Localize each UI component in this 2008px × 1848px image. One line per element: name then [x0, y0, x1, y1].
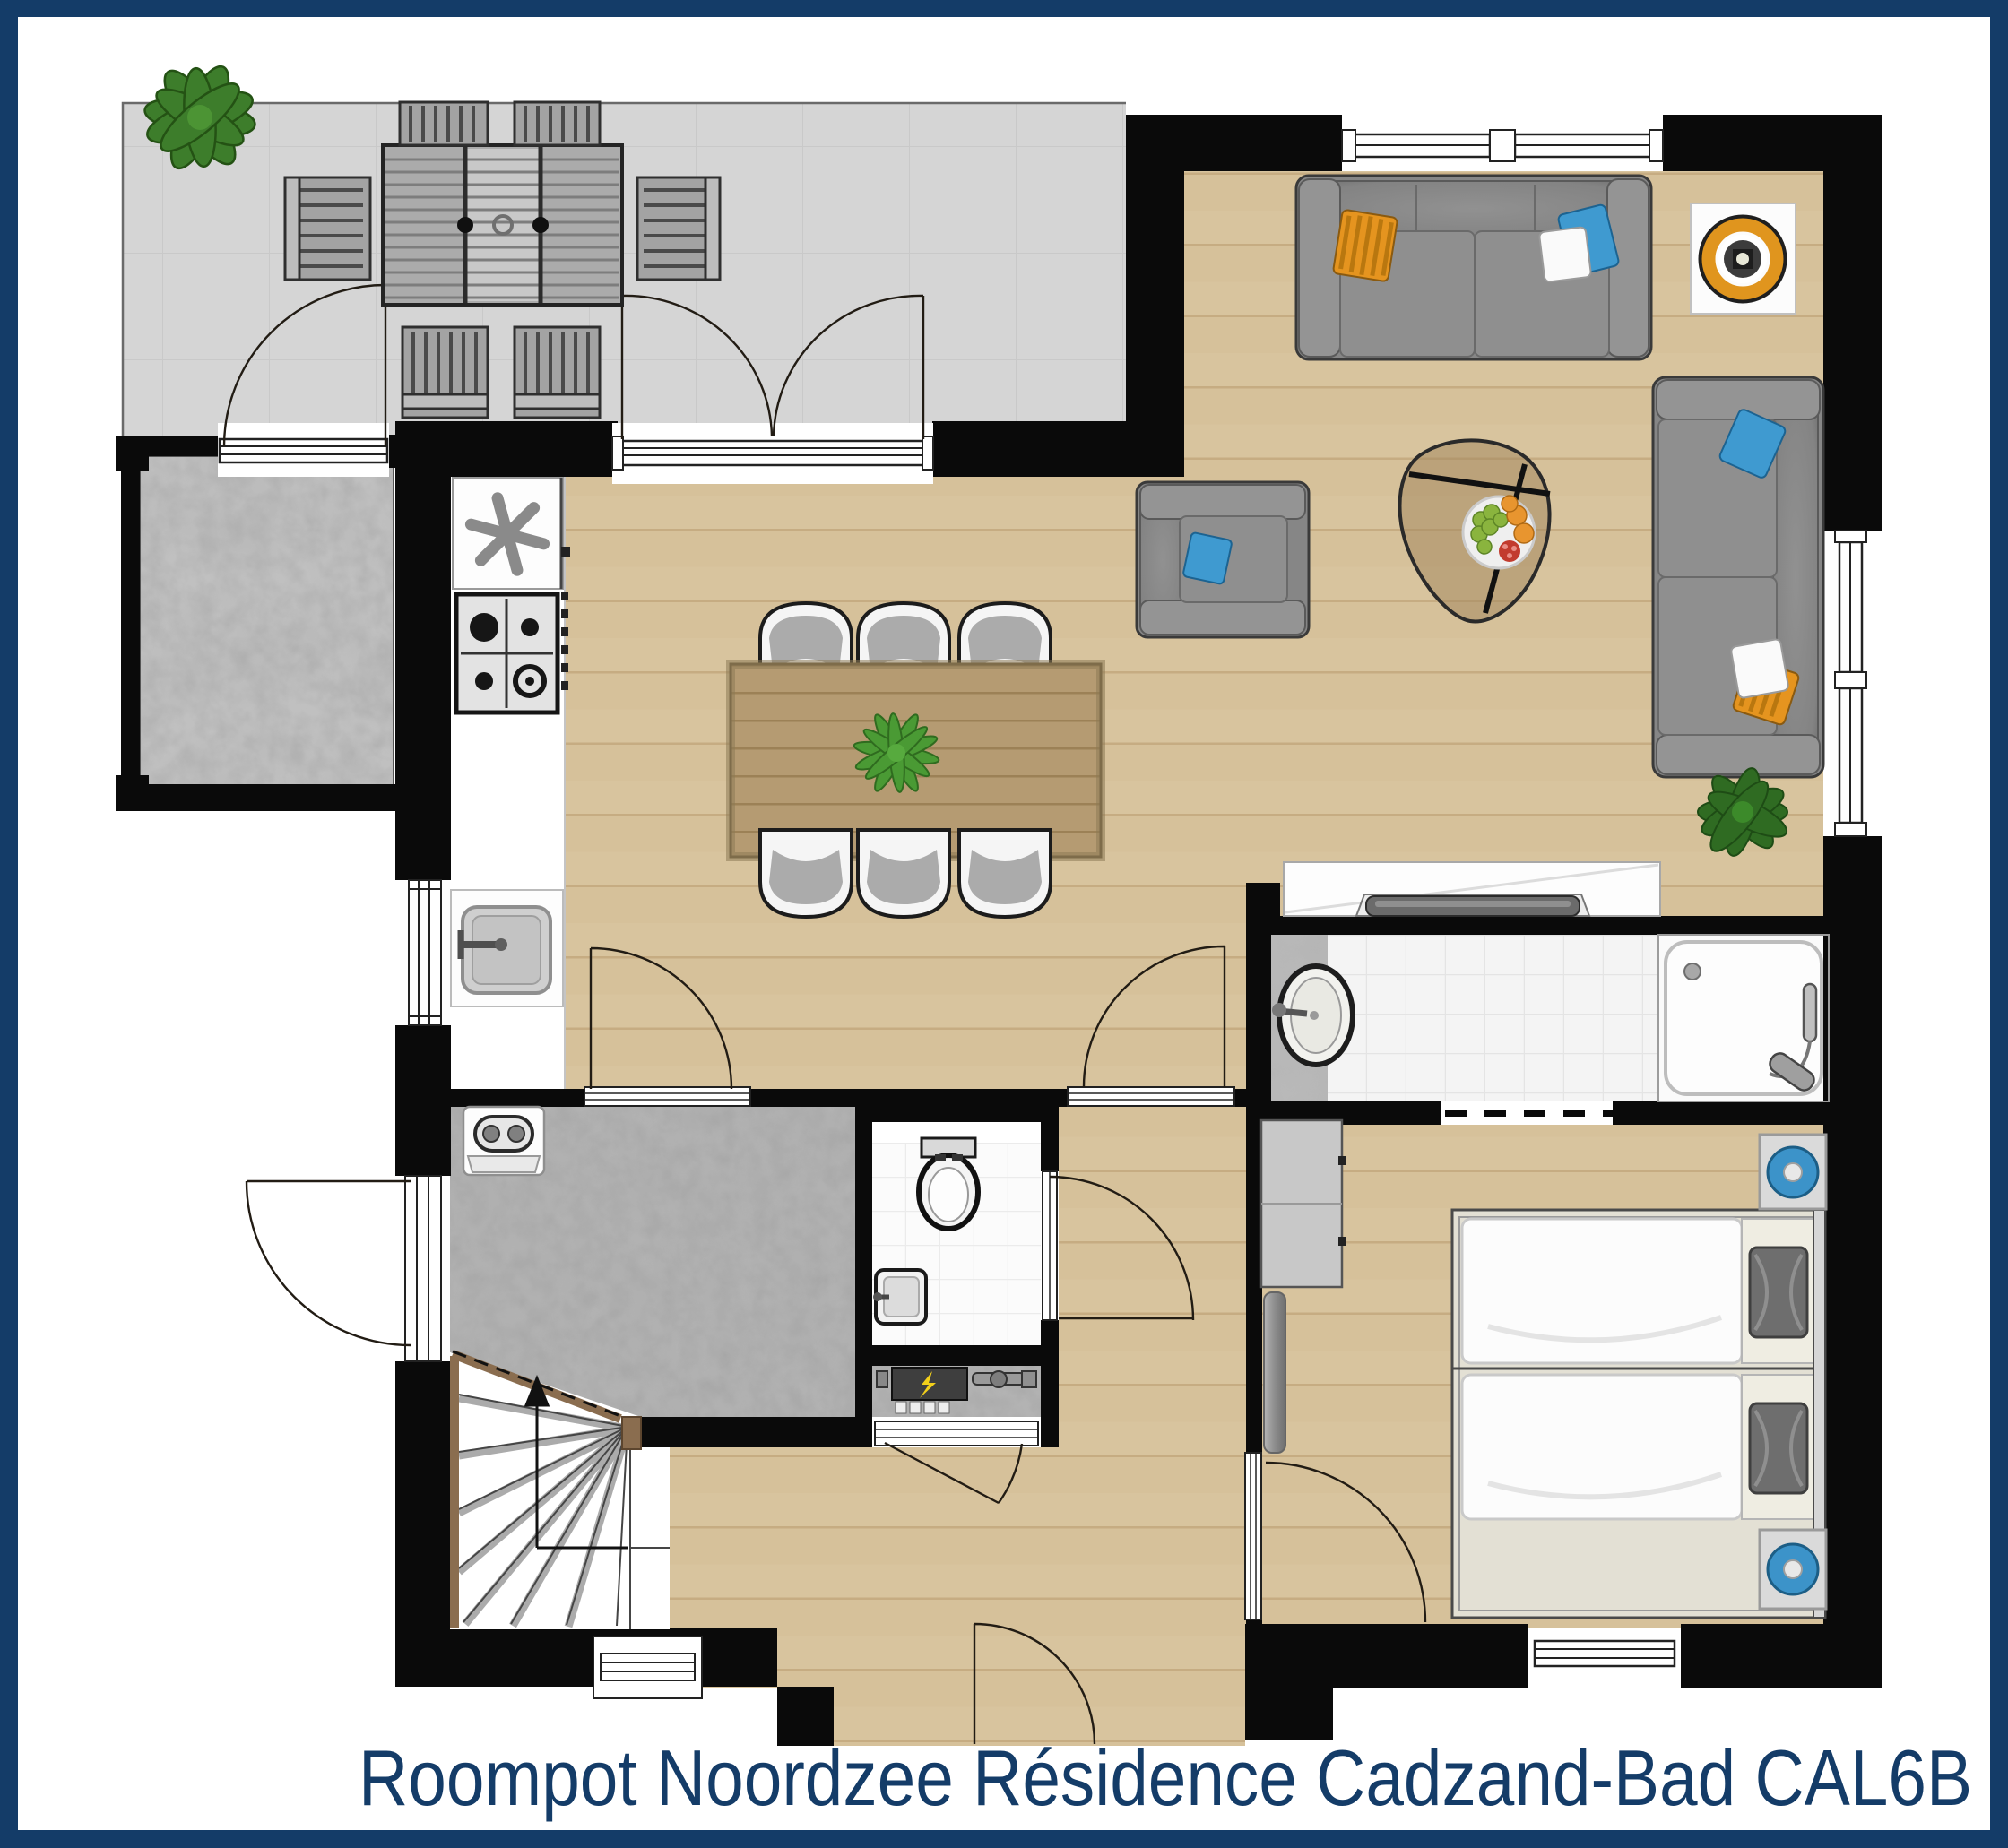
svg-text:Roompot Noordzee Résidence Cad: Roompot Noordzee Résidence Cadzand-Bad C… — [359, 1733, 1972, 1822]
